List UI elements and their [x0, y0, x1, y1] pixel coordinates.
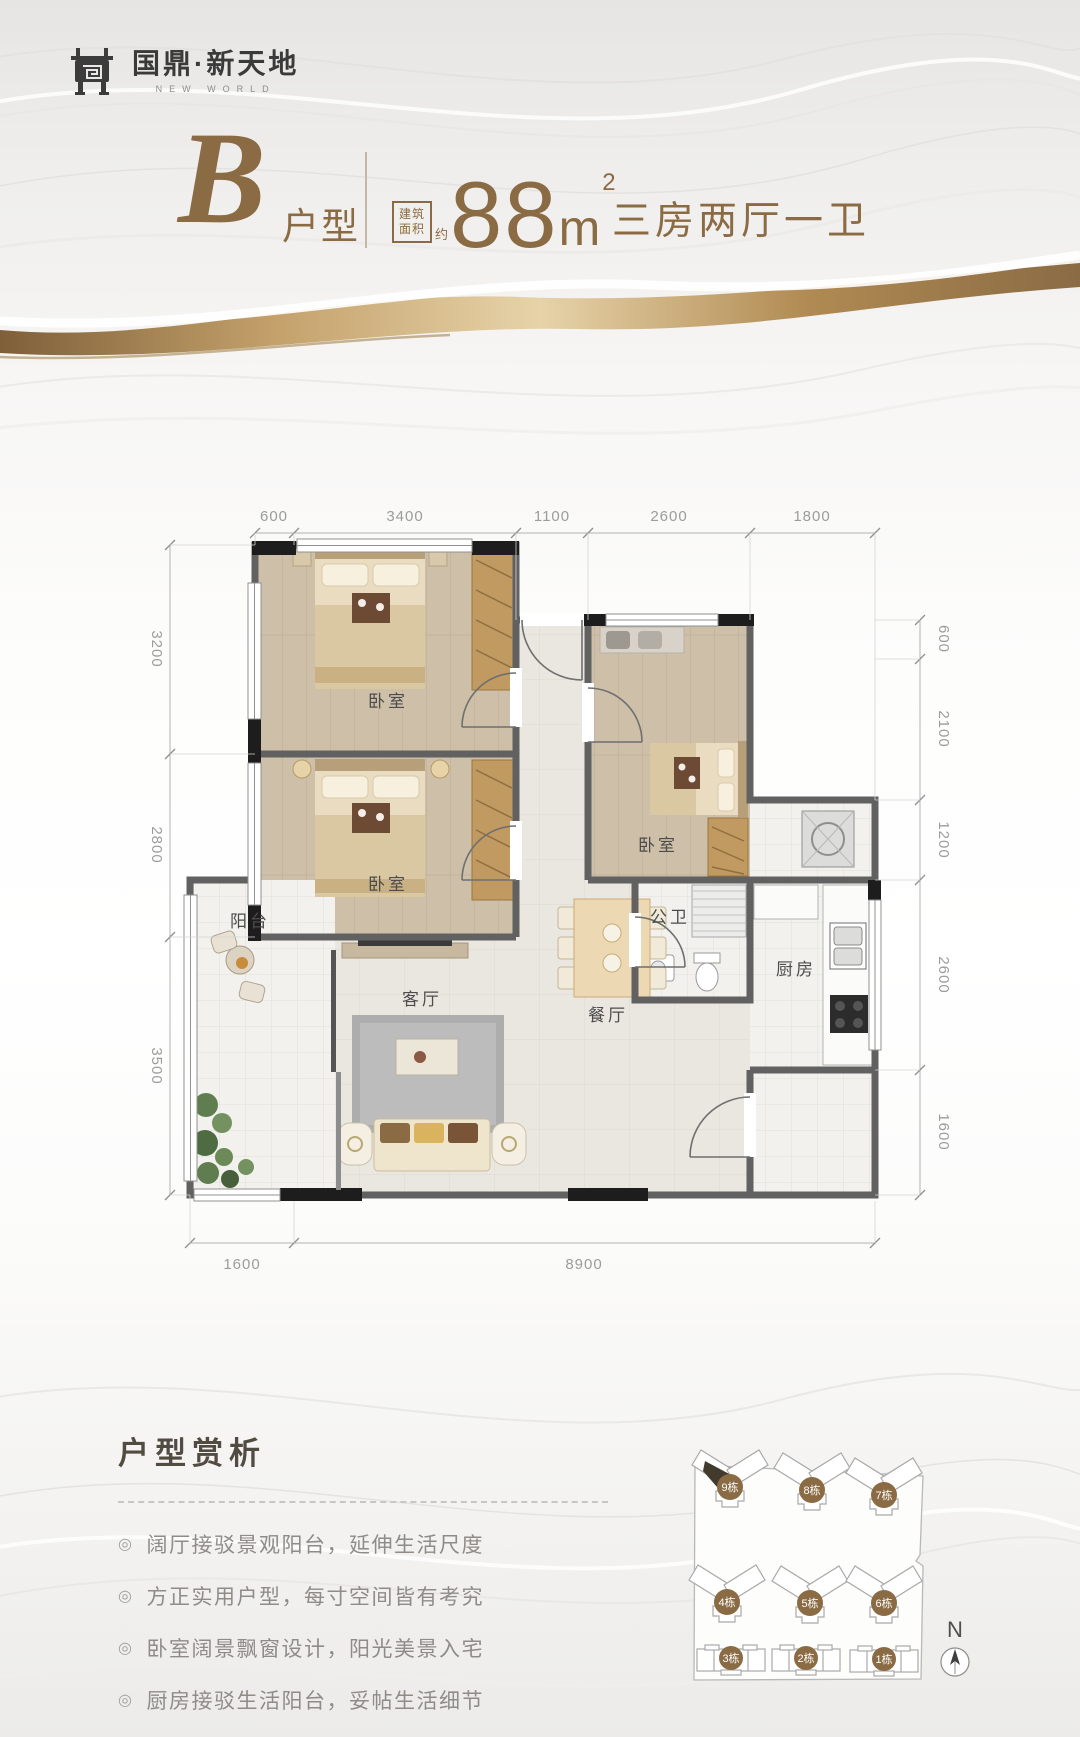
svg-text:3栋: 3栋 — [722, 1651, 739, 1665]
bullet-ring-icon: ◎ — [118, 1690, 133, 1710]
dims-bottom: 1600 8900 — [223, 1256, 602, 1273]
bedroom-master-furniture — [293, 547, 516, 690]
svg-text:600: 600 — [260, 508, 288, 525]
svg-text:3200: 3200 — [148, 630, 165, 667]
svg-text:1600: 1600 — [223, 1256, 260, 1273]
room-label-bathroom: 公卫 — [650, 908, 690, 927]
bullet-ring-icon: ◎ — [118, 1534, 133, 1554]
svg-text:1栋: 1栋 — [875, 1652, 892, 1666]
dims-left: 3200 2800 3500 — [148, 630, 165, 1084]
area-approx: 约 — [435, 224, 448, 243]
svg-text:6栋: 6栋 — [875, 1596, 892, 1610]
area-value: 88 — [450, 178, 559, 251]
svg-text:5栋: 5栋 — [801, 1596, 818, 1610]
brand-name-en: NEW WORLD — [132, 84, 299, 94]
svg-text:2800: 2800 — [148, 826, 165, 863]
svg-text:1200: 1200 — [935, 821, 952, 858]
svg-text:1600: 1600 — [935, 1113, 952, 1150]
dashed-divider — [118, 1501, 608, 1503]
area-group: 建筑 面积 约 88 m2 — [392, 178, 614, 251]
compass-label: N — [947, 1617, 963, 1642]
dims-right: 600 2100 1200 2600 1600 — [935, 625, 952, 1151]
room-label-bedroom-third: 卧室 — [638, 836, 678, 855]
analysis-title: 户型赏析 — [118, 1428, 623, 1473]
analysis-list: ◎阔厅接驳景观阳台，延伸生活尺度 ◎方正实用户型，每寸空间皆有考究 ◎卧室阔景飘… — [118, 1529, 623, 1715]
svg-text:8900: 8900 — [565, 1256, 602, 1273]
brand-name: 国鼎·新天地 — [132, 50, 299, 78]
brand-logo: 国鼎·新天地 NEW WORLD — [66, 46, 299, 98]
bullet-ring-icon: ◎ — [118, 1586, 133, 1606]
svg-text:8栋: 8栋 — [803, 1483, 820, 1497]
svg-text:3400: 3400 — [386, 508, 423, 525]
analysis-item: ◎卧室阔景飘窗设计，阳光美景入宅 — [118, 1633, 623, 1663]
room-label-kitchen: 厨房 — [776, 960, 816, 979]
room-label-bedroom-master: 卧室 — [368, 692, 408, 711]
svg-text:7栋: 7栋 — [875, 1488, 892, 1502]
svg-text:2600: 2600 — [935, 956, 952, 993]
unit-label: 户型 — [282, 196, 360, 250]
svg-text:4栋: 4栋 — [718, 1595, 735, 1609]
analysis-item: ◎厨房接驳生活阳台，妥帖生活细节 — [118, 1685, 623, 1715]
compass: N — [941, 1617, 969, 1676]
svg-text:9栋: 9栋 — [721, 1480, 738, 1494]
svg-text:1800: 1800 — [793, 508, 830, 525]
room-label-balcony: 阳台 — [230, 912, 270, 931]
analysis-item: ◎阔厅接驳景观阳台，延伸生活尺度 — [118, 1529, 623, 1559]
laundry-fixtures — [802, 811, 854, 867]
svg-text:600: 600 — [935, 625, 952, 653]
room-label-dining: 餐厅 — [588, 1006, 628, 1025]
svg-text:3500: 3500 — [148, 1047, 165, 1084]
area-box-label: 建筑 面积 — [392, 201, 432, 243]
site-plan: 9栋 8栋 7栋 4栋 5栋 6栋 3栋 2栋 1栋 N — [635, 1435, 985, 1705]
unit-letter: B — [178, 112, 266, 244]
analysis-section: 户型赏析 ◎阔厅接驳景观阳台，延伸生活尺度 ◎方正实用户型，每寸空间皆有考究 ◎… — [118, 1428, 623, 1737]
dims-top: 600 3400 1100 2600 1800 — [260, 508, 831, 525]
floorplan-floors — [190, 545, 875, 1195]
svg-text:1100: 1100 — [534, 508, 570, 525]
balcony-sliding-door — [331, 950, 336, 1072]
ding-vessel-icon — [66, 46, 118, 98]
bullet-ring-icon: ◎ — [118, 1638, 133, 1658]
layout-summary: 三房两厅一卫 — [612, 190, 870, 246]
room-label-living: 客厅 — [402, 990, 442, 1009]
svg-text:2100: 2100 — [935, 710, 952, 747]
header-divider — [365, 152, 367, 248]
svg-text:2600: 2600 — [650, 508, 687, 525]
area-unit: m2 — [559, 206, 614, 251]
svg-text:2栋: 2栋 — [797, 1651, 814, 1665]
floor-plan: 卧室 卧室 卧室 公卫 阳台 客厅 餐厅 厨房 600 3400 1100 26… — [90, 455, 990, 1295]
analysis-item: ◎方正实用户型，每寸空间皆有考究 — [118, 1581, 623, 1611]
room-label-bedroom-second: 卧室 — [368, 875, 408, 894]
